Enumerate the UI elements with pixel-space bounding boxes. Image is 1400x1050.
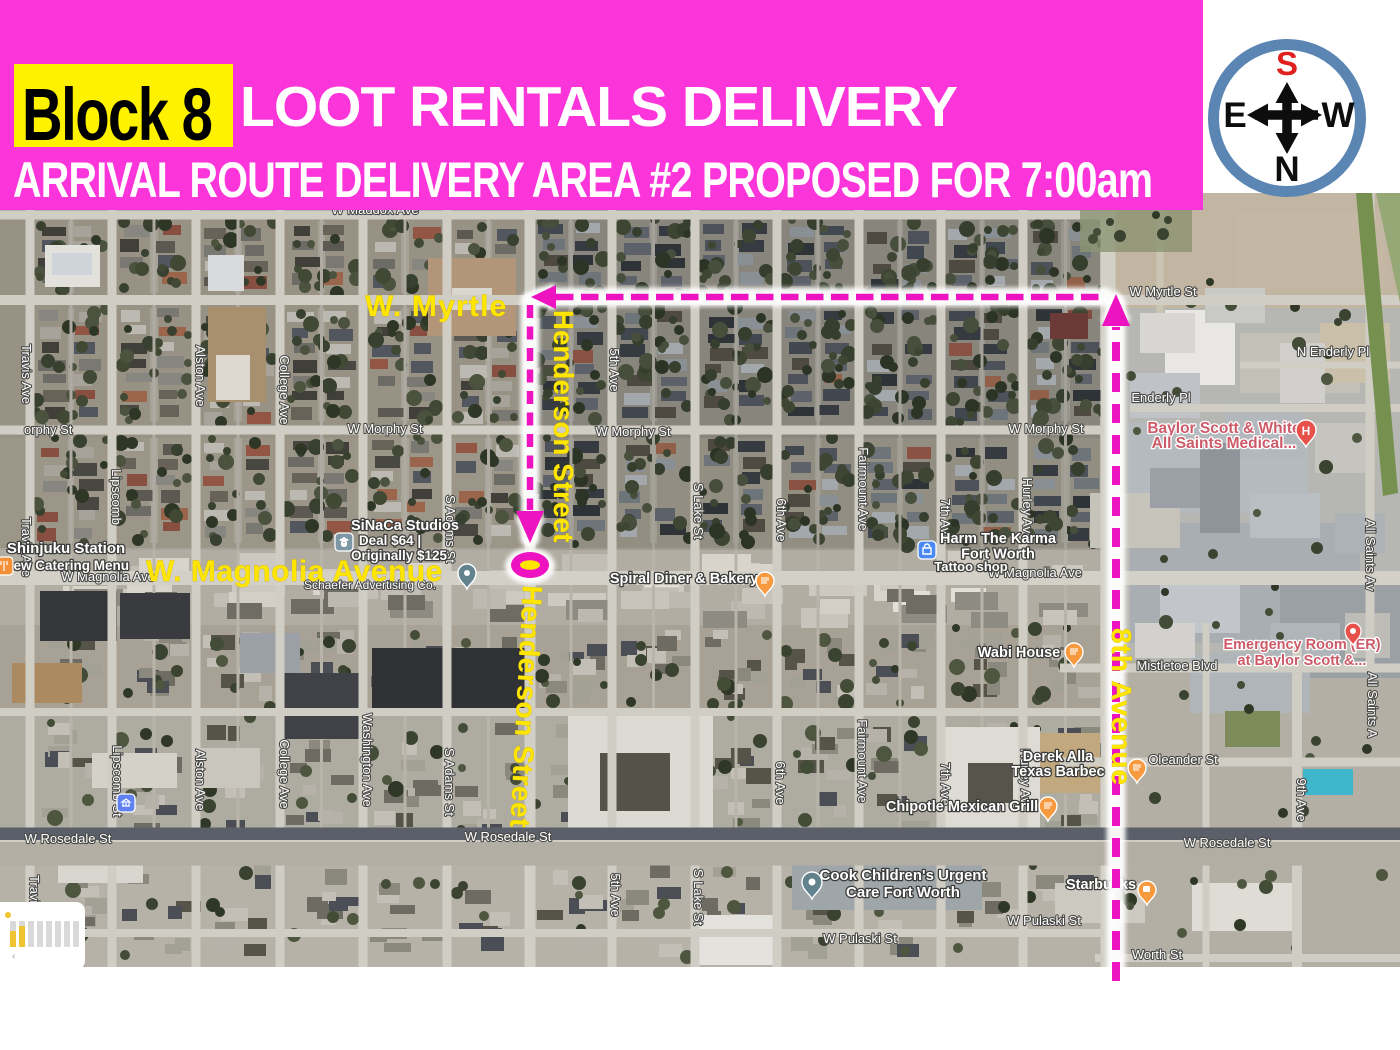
svg-text:Spiral Diner & Bakery: Spiral Diner & Bakery — [610, 571, 758, 587]
svg-text:orphy St: orphy St — [24, 422, 73, 437]
svg-text:N Enderly Pl: N Enderly Pl — [1297, 344, 1369, 359]
svg-text:Care Fort Worth: Care Fort Worth — [846, 884, 960, 901]
svg-text:Oleander St: Oleander St — [1148, 752, 1218, 767]
svg-text:H: H — [1302, 424, 1311, 438]
svg-text:6th Ave: 6th Ave — [773, 761, 788, 804]
svg-text:Mistletoe Blvd: Mistletoe Blvd — [1137, 658, 1218, 673]
svg-text:Alston Ave: Alston Ave — [193, 749, 208, 810]
svg-text:Cook Children's Urgent: Cook Children's Urgent — [820, 867, 987, 884]
svg-text:Deal $64 |: Deal $64 | — [359, 533, 421, 548]
svg-text:W Morphy St: W Morphy St — [1008, 421, 1084, 436]
svg-text:9th Ave: 9th Ave — [1294, 778, 1309, 821]
svg-text:W: W — [1321, 96, 1354, 135]
svg-text:View Catering Menu: View Catering Menu — [1, 558, 129, 573]
svg-text:8th Avenue: 8th Avenue — [1106, 628, 1137, 786]
svg-text:5th Ave: 5th Ave — [608, 873, 623, 916]
svg-text:All Saints A: All Saints A — [1365, 672, 1380, 738]
svg-text:‹: ‹ — [12, 951, 15, 962]
svg-text:Chipotle Mexican Grill: Chipotle Mexican Grill — [886, 799, 1038, 815]
svg-text:W Rosedale St: W Rosedale St — [1184, 835, 1271, 850]
svg-text:SiNaCa Studios: SiNaCa Studios — [351, 518, 459, 534]
svg-text:W Rosedale St: W Rosedale St — [25, 831, 112, 846]
svg-text:W Rosedale St: W Rosedale St — [465, 829, 552, 844]
svg-text:W Pulaski St: W Pulaski St — [823, 931, 897, 946]
svg-text:Enderly Pl: Enderly Pl — [1131, 390, 1190, 405]
svg-text:Henderson Street: Henderson Street — [548, 310, 579, 542]
svg-text:College Ave: College Ave — [277, 739, 292, 808]
svg-text:Washington Ave: Washington Ave — [360, 713, 375, 806]
svg-text:Wabi House: Wabi House — [978, 645, 1060, 661]
svg-text:Tattoo shop: Tattoo shop — [934, 559, 1007, 574]
svg-text:All Saints Av: All Saints Av — [1363, 519, 1378, 592]
svg-text:S: S — [1276, 45, 1298, 82]
svg-text:Shinjuku Station: Shinjuku Station — [7, 540, 125, 557]
svg-text:W Pulaski St: W Pulaski St — [1007, 913, 1081, 928]
svg-text:Travis Ave: Travis Ave — [19, 344, 34, 404]
svg-text:S Lake St: S Lake St — [691, 483, 706, 540]
svg-text:6th Ave: 6th Ave — [774, 498, 789, 541]
svg-text:Harm The Karma: Harm The Karma — [940, 531, 1057, 547]
svg-text:Derek Alla: Derek Alla — [1023, 749, 1094, 765]
svg-text:E: E — [1223, 96, 1246, 135]
svg-text:Worth St: Worth St — [1132, 947, 1183, 962]
svg-text:College Ave: College Ave — [277, 355, 292, 424]
svg-text:W. Magnolia Avenue: W. Magnolia Avenue — [146, 555, 443, 588]
svg-text:5th Ave: 5th Ave — [607, 348, 622, 391]
svg-text:Starbucks: Starbucks — [1066, 877, 1136, 893]
svg-text:Texas Barbec: Texas Barbec — [1011, 764, 1104, 780]
svg-text:Fairmount Ave: Fairmount Ave — [856, 447, 871, 531]
svg-text:Lipscomb: Lipscomb — [109, 469, 124, 525]
svg-text:W Myrtle St: W Myrtle St — [1129, 284, 1197, 299]
svg-text:at Baylor Scott &...: at Baylor Scott &... — [1238, 653, 1367, 669]
svg-text:N: N — [1274, 150, 1299, 189]
svg-text:W Morphy St: W Morphy St — [347, 421, 423, 436]
svg-text:Fairmount Ave: Fairmount Ave — [855, 719, 870, 803]
svg-text:S Adams St: S Adams St — [442, 748, 457, 816]
svg-text:All Saints Medical...: All Saints Medical... — [1152, 435, 1297, 452]
svg-text:S Lake St: S Lake St — [691, 869, 706, 926]
svg-text:W Morphy St: W Morphy St — [595, 424, 671, 439]
svg-text:Alston Ave: Alston Ave — [193, 345, 208, 406]
svg-text:W. Myrtle: W. Myrtle — [365, 290, 508, 323]
